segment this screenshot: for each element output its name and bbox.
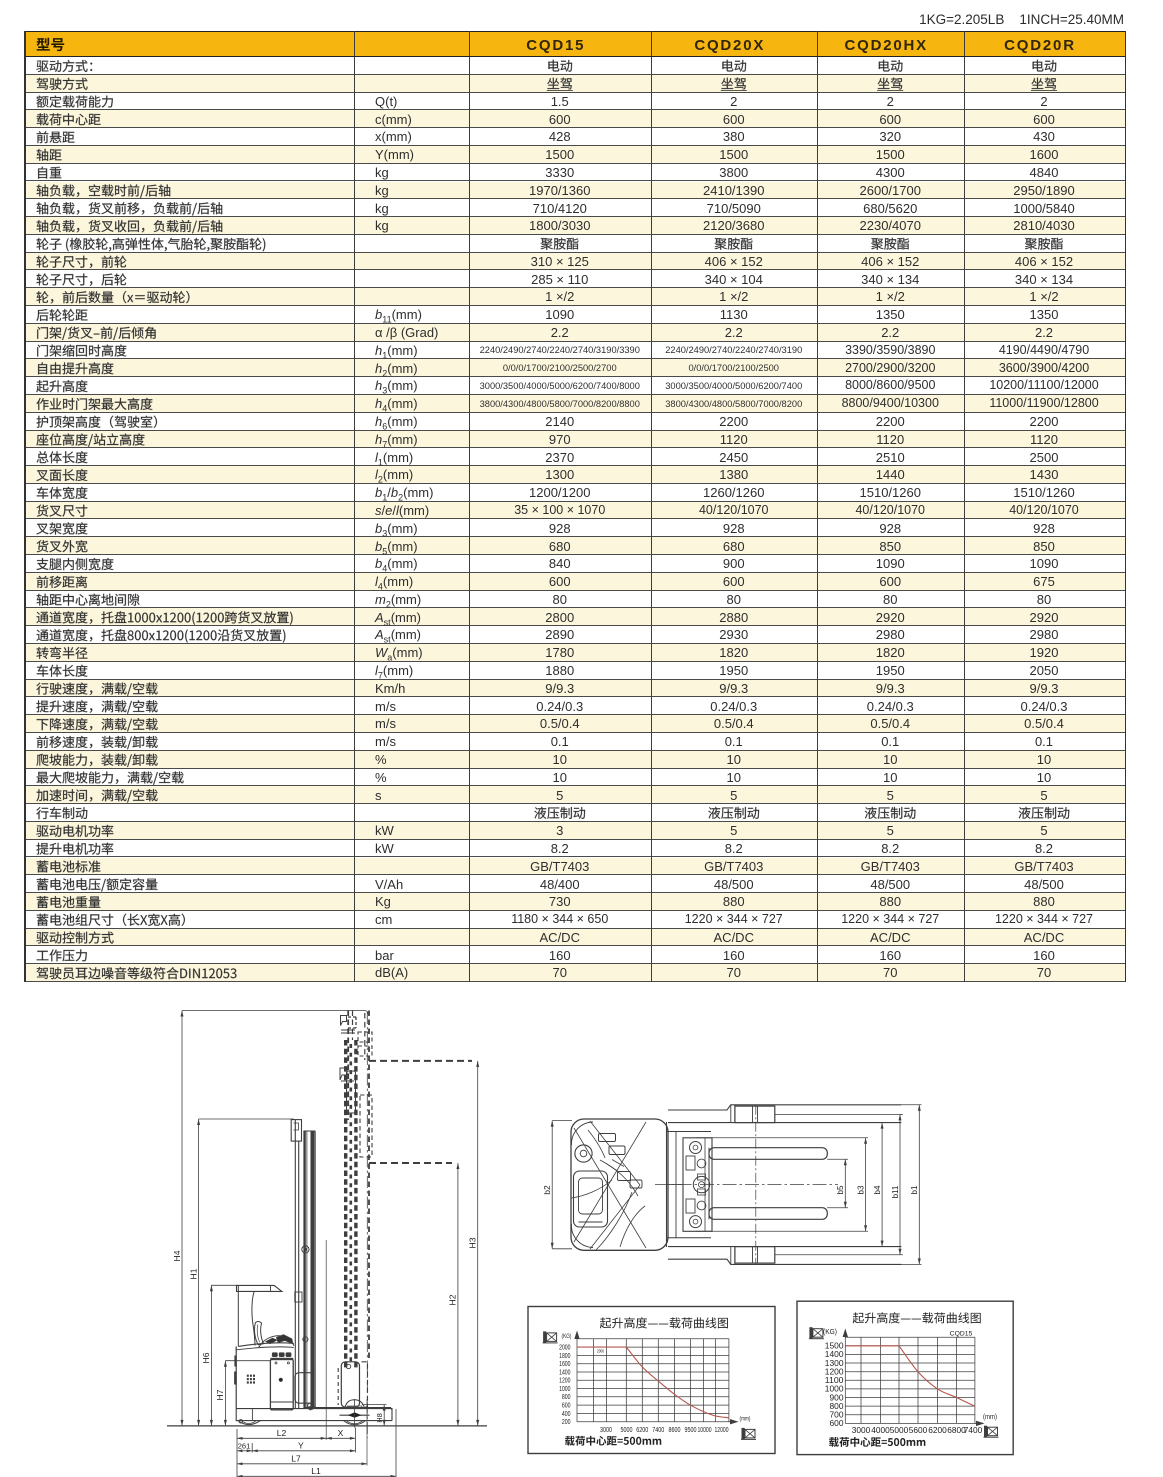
svg-text:700: 700: [830, 1411, 844, 1420]
svg-text:800: 800: [562, 1392, 571, 1401]
svg-text:6800: 6800: [947, 1425, 966, 1435]
svg-text:1500: 1500: [825, 1342, 844, 1351]
svg-text:2000: 2000: [597, 1349, 604, 1354]
svg-text:b5: b5: [836, 1185, 845, 1194]
svg-text:Y: Y: [298, 1440, 304, 1450]
svg-text:1000: 1000: [559, 1384, 570, 1393]
svg-text:1200: 1200: [559, 1376, 570, 1385]
svg-text:H7: H7: [215, 1389, 225, 1400]
svg-text:H2: H2: [448, 1294, 458, 1305]
svg-text:(mm): (mm): [740, 1416, 751, 1423]
svg-text:H3: H3: [468, 1237, 478, 1248]
svg-text:1600: 1600: [559, 1359, 570, 1368]
svg-text:CQD15: CQD15: [950, 1331, 973, 1338]
svg-text:b11: b11: [891, 1185, 900, 1198]
svg-text:1400: 1400: [825, 1350, 844, 1359]
svg-text:H6: H6: [201, 1352, 211, 1363]
svg-text:2000: 2000: [559, 1343, 570, 1352]
svg-text:800: 800: [830, 1402, 844, 1411]
svg-text:X: X: [338, 1428, 344, 1438]
svg-text:b2: b2: [542, 1185, 552, 1195]
svg-text:1300: 1300: [825, 1359, 844, 1368]
svg-text:1800: 1800: [559, 1351, 570, 1360]
svg-text:b1: b1: [910, 1185, 919, 1194]
svg-text:600: 600: [562, 1401, 571, 1410]
svg-text:L7: L7: [291, 1453, 301, 1463]
svg-text:3000: 3000: [600, 1425, 612, 1434]
svg-text:(KG): (KG): [823, 1329, 837, 1336]
svg-text:7400: 7400: [652, 1425, 664, 1434]
svg-text:1000: 1000: [825, 1385, 844, 1394]
svg-text:1100: 1100: [825, 1376, 844, 1385]
svg-text:H4: H4: [172, 1250, 182, 1261]
svg-text:7400: 7400: [964, 1425, 983, 1435]
svg-text:1200: 1200: [825, 1368, 844, 1377]
svg-text:(mm): (mm): [983, 1414, 997, 1421]
svg-text:L2: L2: [277, 1428, 287, 1438]
svg-text:9500: 9500: [685, 1425, 697, 1434]
svg-text:6200: 6200: [928, 1425, 947, 1435]
svg-text:H8: H8: [375, 1413, 384, 1423]
svg-text:6200: 6200: [636, 1425, 648, 1434]
svg-text:8600: 8600: [669, 1425, 681, 1434]
svg-text:261: 261: [238, 1441, 251, 1450]
svg-text:200: 200: [562, 1417, 571, 1426]
svg-text:b4: b4: [873, 1185, 882, 1194]
svg-text:5000: 5000: [890, 1425, 909, 1435]
svg-text:4000: 4000: [871, 1425, 890, 1435]
svg-text:3000: 3000: [852, 1425, 871, 1435]
svg-text:600: 600: [830, 1419, 844, 1428]
svg-text:L1: L1: [311, 1466, 321, 1476]
svg-text:900: 900: [830, 1393, 844, 1402]
svg-text:400: 400: [562, 1409, 571, 1418]
svg-text:b3: b3: [856, 1185, 865, 1194]
svg-text:10000: 10000: [698, 1425, 712, 1434]
svg-text:5600: 5600: [909, 1425, 928, 1435]
svg-text:12000: 12000: [715, 1425, 729, 1434]
svg-text:(KG): (KG): [562, 1333, 572, 1340]
svg-text:1400: 1400: [559, 1367, 570, 1376]
svg-text:5000: 5000: [621, 1425, 633, 1434]
svg-text:H1: H1: [188, 1268, 198, 1279]
